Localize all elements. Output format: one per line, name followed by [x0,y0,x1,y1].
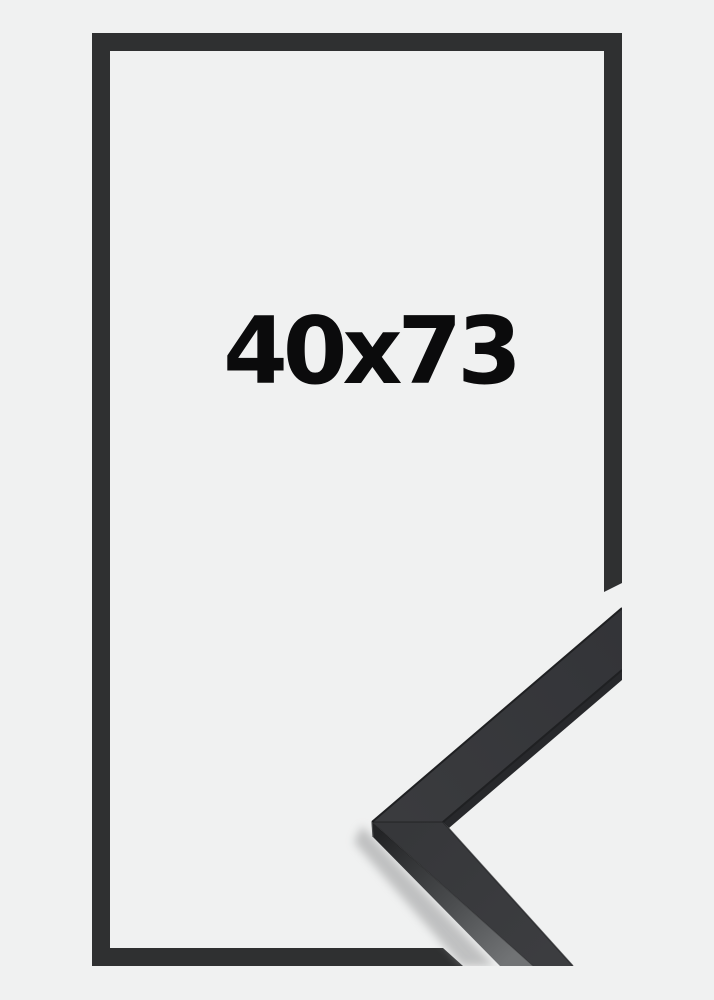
size-label: 40x73 [223,297,517,405]
frame-outline-right-bar [604,33,622,592]
frame-product-image: 40x73 [0,0,714,1000]
frame-outline-bottom-bar [92,948,463,966]
frame-outline-left-bar [92,33,110,966]
frame-outline-top-bar [92,33,622,51]
frame-graphic: 40x73 [0,0,714,1000]
